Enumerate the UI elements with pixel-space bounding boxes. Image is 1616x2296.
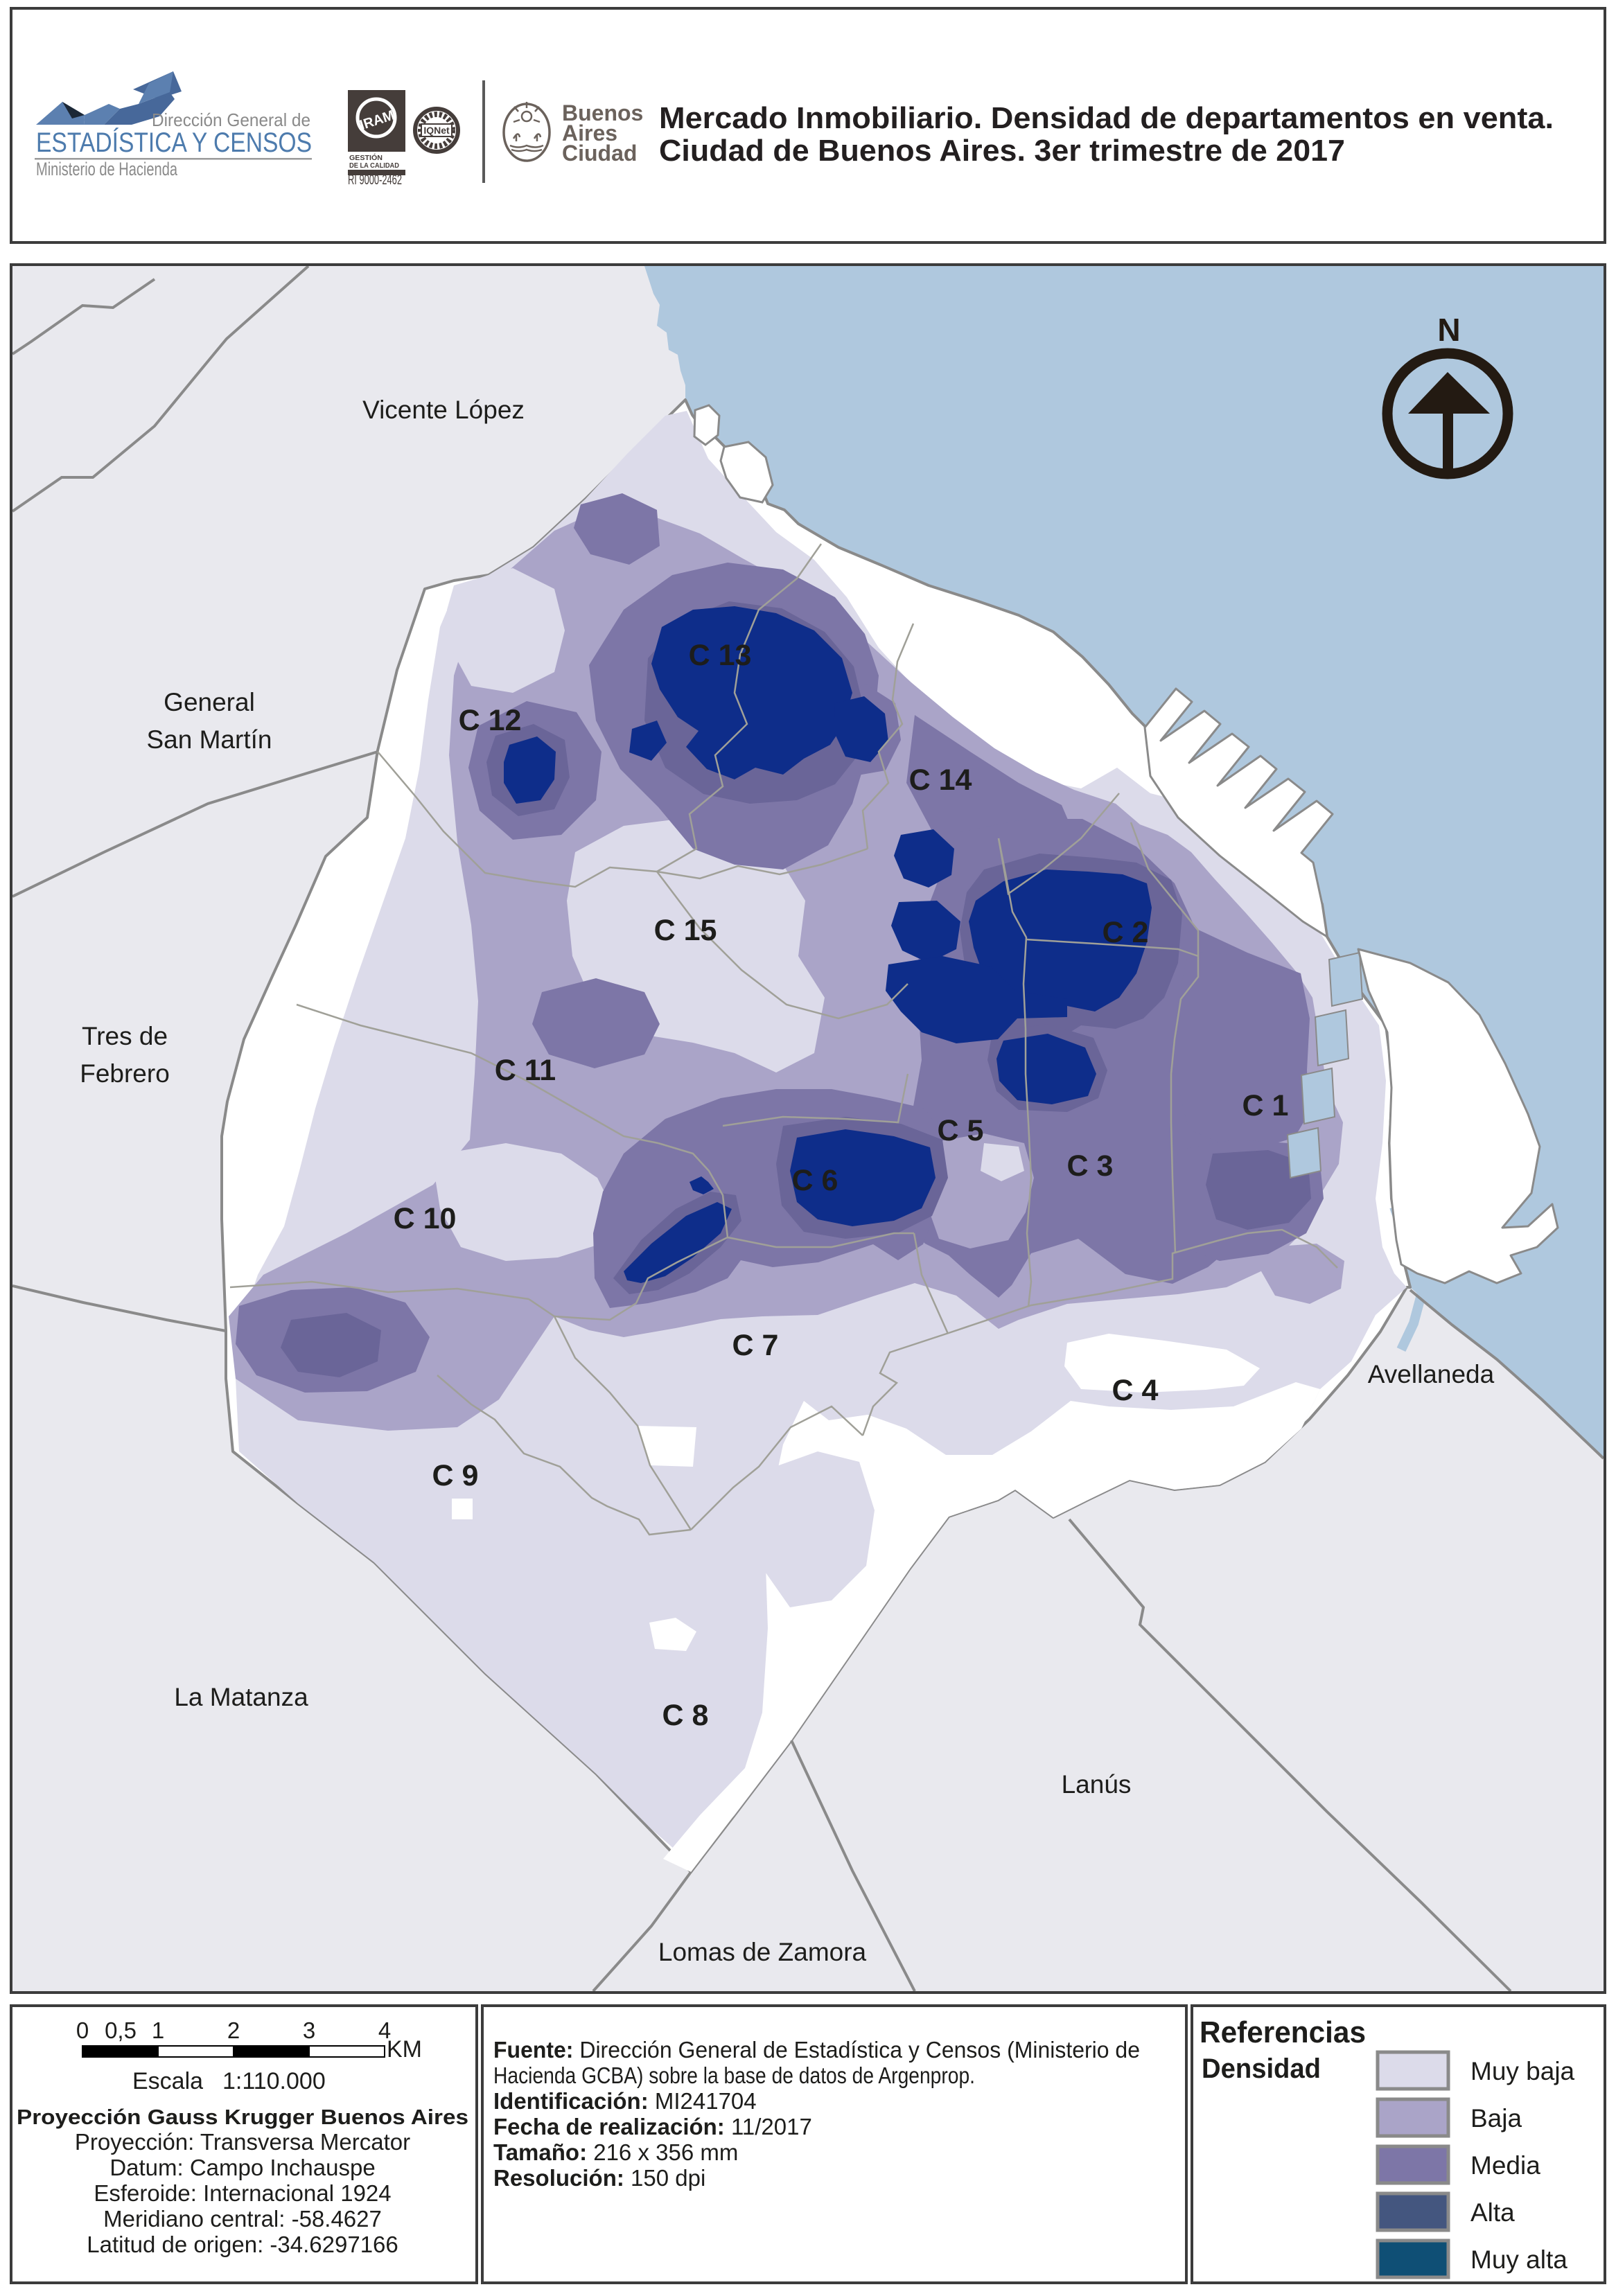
svg-text:Escala: Escala xyxy=(132,2068,203,2094)
svg-text:Ministerio de Hacienda: Ministerio de Hacienda xyxy=(36,159,178,179)
svg-text:C 2: C 2 xyxy=(1103,916,1149,949)
svg-text:Baja: Baja xyxy=(1470,2104,1522,2132)
svg-text:Fuente: Dirección General de E: Fuente: Dirección General de Estadística… xyxy=(493,2037,1140,2063)
svg-text:Febrero: Febrero xyxy=(80,1059,170,1088)
svg-text:DE LA CALIDAD: DE LA CALIDAD xyxy=(349,162,399,170)
svg-text:C 3: C 3 xyxy=(1067,1149,1114,1183)
svg-text:Datum: Campo Inchauspe: Datum: Campo Inchauspe xyxy=(109,2155,375,2180)
svg-text:Ciudad de Buenos Aires. 3er tr: Ciudad de Buenos Aires. 3er trimestre de… xyxy=(659,134,1345,168)
svg-text:0,5: 0,5 xyxy=(105,2017,137,2043)
svg-text:Media: Media xyxy=(1470,2151,1540,2180)
svg-text:Hacienda GCBA) sobre la base d: Hacienda GCBA) sobre la base de datos de… xyxy=(493,2063,975,2088)
svg-text:3: 3 xyxy=(303,2017,315,2043)
svg-text:Muy baja: Muy baja xyxy=(1470,2057,1575,2085)
svg-text:Vicente López: Vicente López xyxy=(362,396,525,424)
svg-text:C 11: C 11 xyxy=(495,1054,556,1087)
svg-text:Densidad: Densidad xyxy=(1202,2054,1321,2084)
svg-text:Resolución: 150 dpi: Resolución: 150 dpi xyxy=(493,2165,705,2191)
svg-text:Tamaño: 216 x 356 mm: Tamaño: 216 x 356 mm xyxy=(493,2139,738,2165)
svg-text:C 9: C 9 xyxy=(432,1459,479,1492)
svg-text:C 15: C 15 xyxy=(654,914,717,947)
svg-text:0: 0 xyxy=(76,2017,89,2043)
svg-text:Latitud de origen: -34.6297166: Latitud de origen: -34.6297166 xyxy=(87,2232,398,2257)
svg-text:Proyección Gauss Krugger Bueno: Proyección Gauss Krugger Buenos Aires xyxy=(17,2105,468,2129)
svg-text:C 12: C 12 xyxy=(459,704,522,737)
svg-text:Muy alta: Muy alta xyxy=(1470,2245,1567,2274)
svg-text:1: 1 xyxy=(152,2017,164,2043)
svg-text:KM: KM xyxy=(387,2036,422,2063)
svg-text:Lanús: Lanús xyxy=(1062,1770,1132,1799)
svg-text:Referencias: Referencias xyxy=(1200,2015,1366,2049)
svg-text:RI 9000-2462: RI 9000-2462 xyxy=(348,173,402,188)
svg-text:General: General xyxy=(164,688,255,716)
svg-text:Proyección: Transversa Mercato: Proyección: Transversa Mercator xyxy=(75,2129,410,2155)
svg-text:C 5: C 5 xyxy=(938,1114,984,1147)
svg-text:Tres de: Tres de xyxy=(82,1022,168,1050)
svg-text:Fecha de realización: 11/2017: Fecha de realización: 11/2017 xyxy=(493,2114,812,2139)
svg-text:C 6: C 6 xyxy=(792,1164,838,1197)
svg-text:C 13: C 13 xyxy=(689,639,752,672)
svg-text:C 4: C 4 xyxy=(1112,1374,1159,1407)
svg-text:1:110.000: 1:110.000 xyxy=(222,2068,326,2094)
svg-text:Mercado Inmobiliario. Densidad: Mercado Inmobiliario. Densidad de depart… xyxy=(659,101,1554,135)
svg-text:C 8: C 8 xyxy=(662,1699,709,1732)
svg-text:C 7: C 7 xyxy=(732,1329,779,1362)
svg-text:ESTADÍSTICA Y CENSOS: ESTADÍSTICA Y CENSOS xyxy=(36,127,312,158)
svg-text:GESTIÓN: GESTIÓN xyxy=(349,153,383,162)
svg-text:Esferoide: Internacional 1924: Esferoide: Internacional 1924 xyxy=(94,2180,391,2206)
svg-text:Meridiano central: -58.4627: Meridiano central: -58.4627 xyxy=(103,2206,382,2232)
svg-text:C 10: C 10 xyxy=(394,1202,457,1235)
svg-text:Lomas de Zamora: Lomas de Zamora xyxy=(658,1938,867,1966)
svg-text:San Martín: San Martín xyxy=(147,725,272,754)
svg-text:IQNet: IQNet xyxy=(423,125,450,136)
svg-text:2: 2 xyxy=(227,2017,240,2043)
svg-text:Alta: Alta xyxy=(1470,2198,1515,2227)
svg-text:N: N xyxy=(1437,312,1460,348)
svg-text:Avellaneda: Avellaneda xyxy=(1368,1360,1495,1388)
svg-text:Ciudad: Ciudad xyxy=(562,141,637,166)
svg-text:C 14: C 14 xyxy=(909,763,972,797)
svg-text:C 1: C 1 xyxy=(1242,1089,1289,1122)
svg-text:La Matanza: La Matanza xyxy=(174,1683,308,1711)
svg-text:Identificación: MI241704: Identificación: MI241704 xyxy=(493,2088,757,2114)
